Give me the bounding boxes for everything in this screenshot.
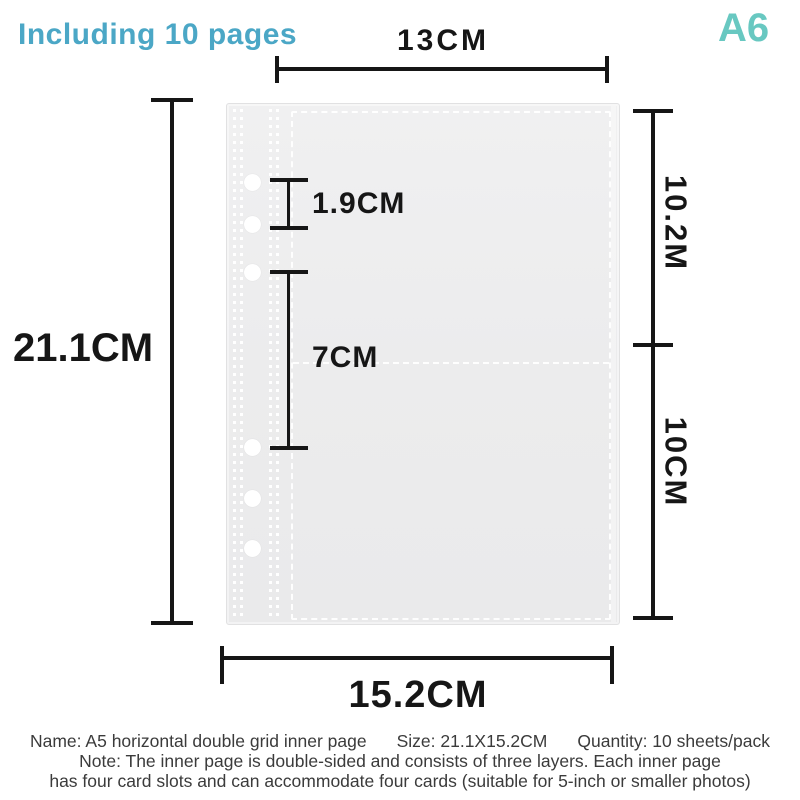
dim-overall-width-line <box>222 656 614 660</box>
dim-overall-height-line <box>170 100 174 623</box>
stitch-column <box>269 109 272 619</box>
dim-tick <box>270 178 308 182</box>
dim-top-width-line <box>277 67 609 71</box>
sleeve-right-edge <box>611 106 616 622</box>
stitch-column <box>276 109 279 619</box>
dim-pocket-height-line <box>287 272 290 450</box>
binder-hole <box>244 264 261 281</box>
binder-hole <box>244 540 261 557</box>
product-description: Name: A5 horizontal double grid inner pa… <box>0 731 800 791</box>
stitch-column <box>233 109 236 619</box>
dim-overall-height-label: 21.1CM <box>4 326 162 371</box>
dim-hole-gap-line <box>287 180 290 228</box>
dim-tick <box>605 56 609 83</box>
dim-tick <box>151 98 193 102</box>
dim-pocket-height-label: 7CM <box>312 341 378 375</box>
binder-hole <box>244 174 261 191</box>
dim-tick <box>151 621 193 625</box>
dim-tick <box>270 270 308 274</box>
dim-tick <box>633 616 673 620</box>
description-line-1: Name: A5 horizontal double grid inner pa… <box>0 731 800 751</box>
dim-right-sections-line <box>651 111 655 618</box>
binder-hole <box>244 216 261 233</box>
stitch-column <box>240 109 243 619</box>
dim-lower-section-label: 10CM <box>656 392 696 533</box>
dim-top-width-label: 13CM <box>277 24 609 58</box>
dim-upper-section-label: 10.2M <box>656 153 696 294</box>
dim-tick <box>275 56 279 83</box>
dim-tick <box>270 226 308 230</box>
dim-tick <box>220 646 224 684</box>
description-line-2: Note: The inner page is double-sided and… <box>0 751 800 771</box>
paper-size-code: A6 <box>718 6 769 51</box>
dim-tick <box>633 109 673 113</box>
dim-hole-gap-label: 1.9CM <box>312 187 405 221</box>
product-size-text: Size: 21.1X15.2CM <box>397 731 548 751</box>
product-quantity-text: Quantity: 10 sheets/pack <box>577 731 770 751</box>
dim-tick <box>610 646 614 684</box>
description-line-3: has four card slots and can accommodate … <box>0 771 800 791</box>
included-pages-note: Including 10 pages <box>18 18 297 52</box>
binder-hole <box>244 439 261 456</box>
binder-hole <box>244 490 261 507</box>
product-name-text: Name: A5 horizontal double grid inner pa… <box>30 731 367 751</box>
dim-tick <box>270 446 308 450</box>
dim-tick <box>633 343 673 347</box>
product-infographic: Including 10 pages A6 13CM 21.1CM 10.2M … <box>0 0 800 800</box>
dim-overall-width-label: 15.2CM <box>272 674 564 717</box>
